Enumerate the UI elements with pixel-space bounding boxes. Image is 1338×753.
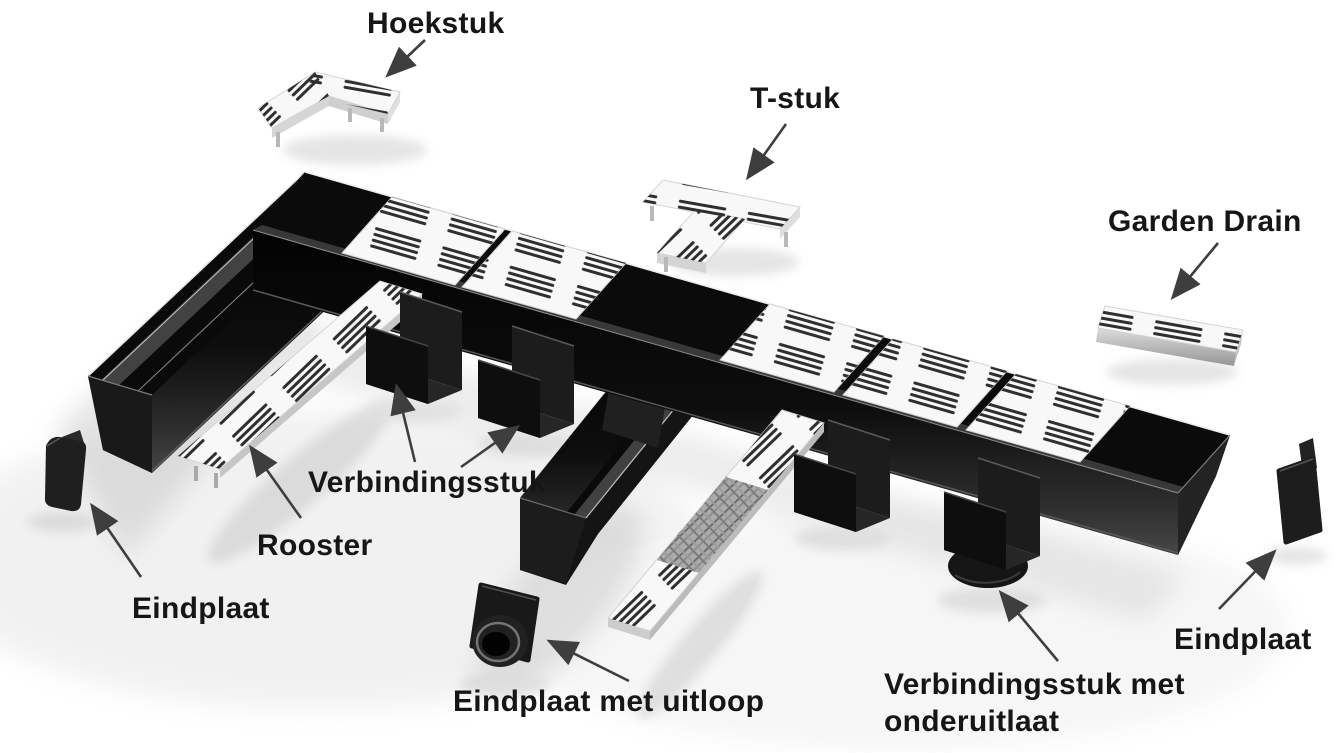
diagram-canvas: Hoekstuk T-stuk Garden Drain Verbindings… [0,0,1338,753]
label-hoekstuk: Hoekstuk [367,7,504,40]
label-t-stuk: T-stuk [750,82,840,115]
label-eindplaat-right: Eindplaat [1174,623,1312,656]
garden-drain-diagram: Hoekstuk T-stuk Garden Drain Verbindings… [0,0,1338,753]
label-verbindingsstuk: Verbindingsstuk [308,466,546,499]
eindplaat-met-uitloop-piece [472,585,537,667]
label-verbindingsstuk-met-onderuitlaat-line2: onderuitlaat [884,705,1059,738]
label-garden-drain: Garden Drain [1108,205,1302,238]
label-rooster: Rooster [257,529,372,562]
label-verbindingsstuk-met-onderuitlaat-line1: Verbindingsstuk met [884,668,1185,701]
eindplaat-piece-left [45,430,86,511]
label-eindplaat-met-uitloop: Eindplaat met uitloop [453,685,764,718]
label-eindplaat-left: Eindplaat [132,592,270,625]
